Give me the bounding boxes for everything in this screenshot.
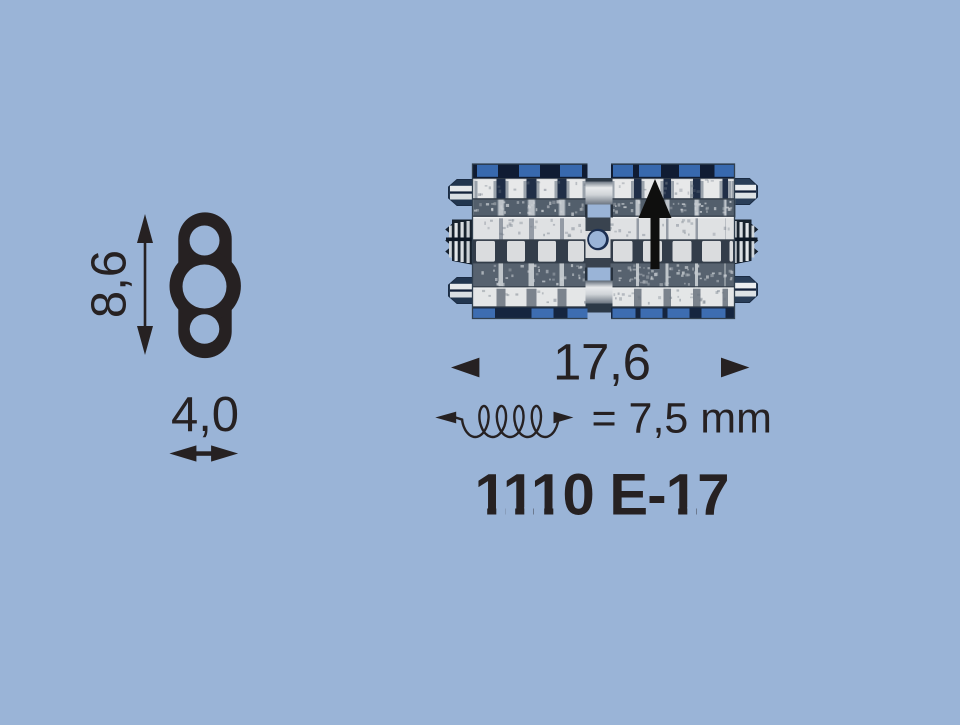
svg-text:= 7,5 mm: = 7,5 mm xyxy=(592,395,772,443)
svg-text:4,0: 4,0 xyxy=(171,388,239,442)
svg-text:8,6: 8,6 xyxy=(83,250,137,318)
svg-text:17,6: 17,6 xyxy=(553,333,651,390)
